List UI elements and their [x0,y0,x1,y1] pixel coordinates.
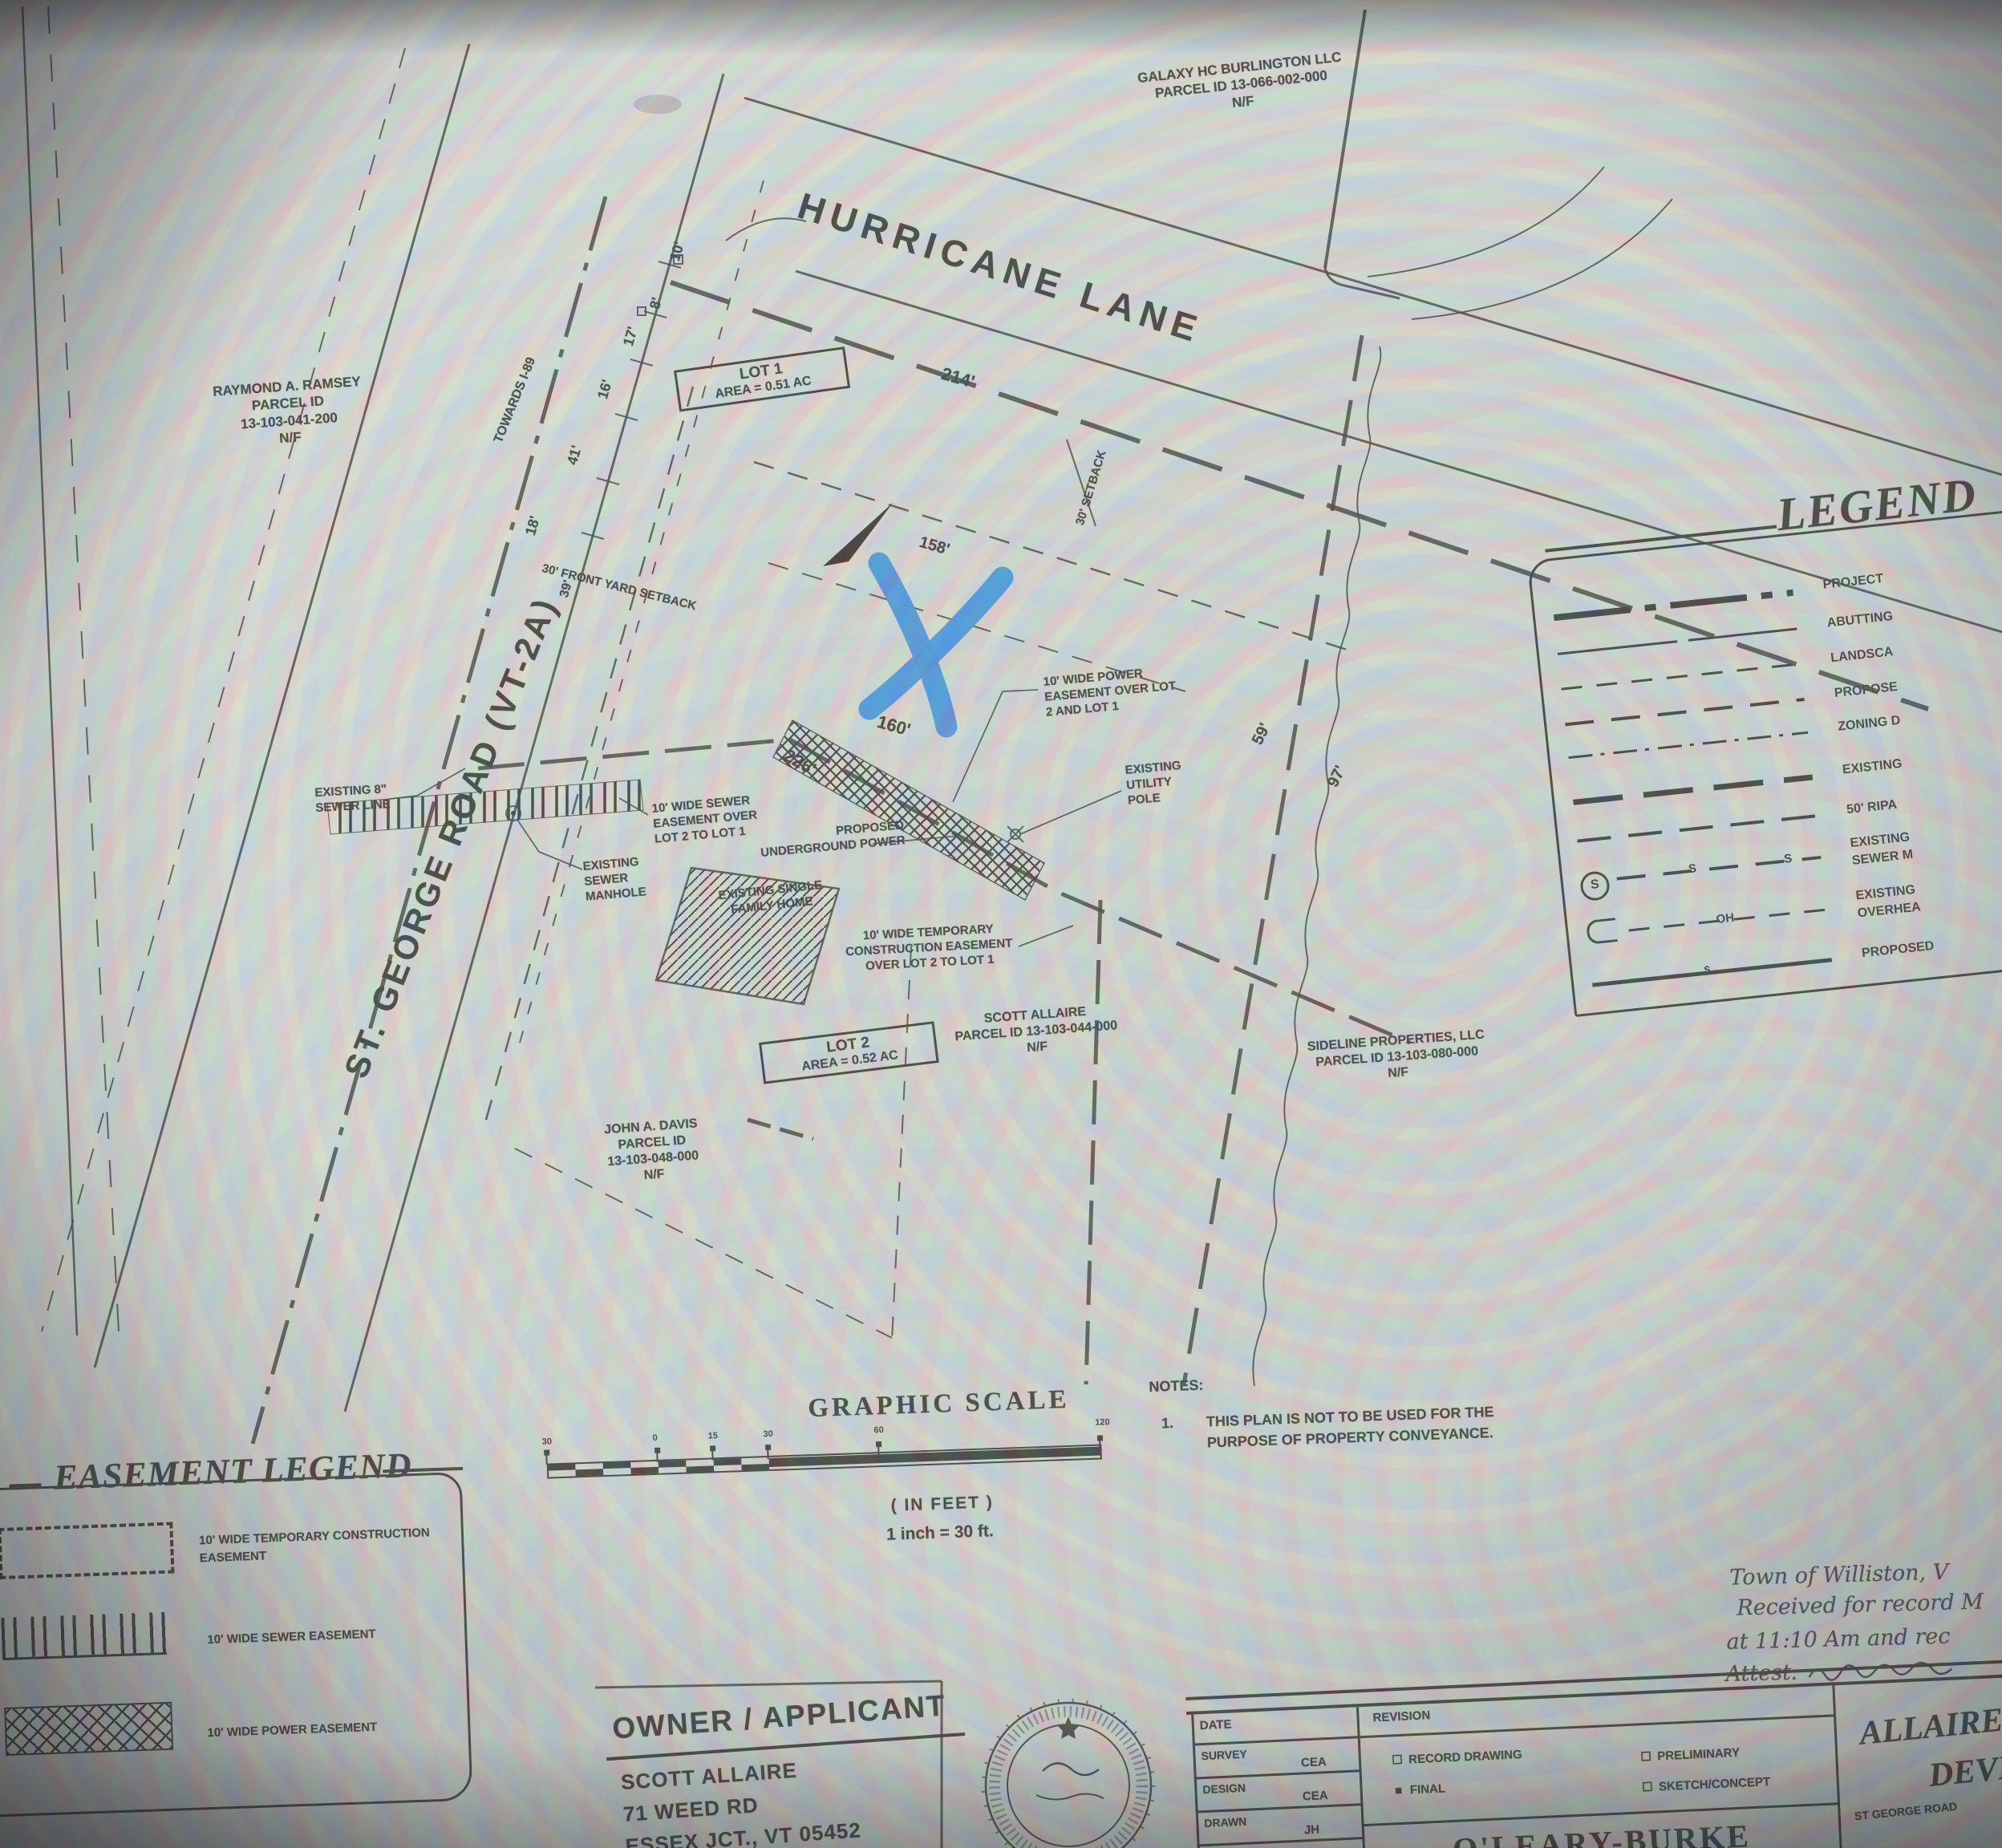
proposed-s-mark: s [1703,962,1711,976]
titleblock-row-label: DESIGN [1202,1781,1246,1797]
project-title-line1: ALLAIRE RESIDE [1858,1686,2002,1755]
sewer-easement-swatch [1,1612,167,1660]
checkbox-record-drawing: ☐ RECORD DRAWING [1389,1748,1523,1769]
title-block-rule [1193,1736,1360,1745]
callout-manhole: EXISTING SEWER MANHOLE [582,854,646,905]
checkbox-icon: ■ [1390,1784,1407,1800]
callout-utility-pole: EXISTING UTILITY POLE [1125,759,1185,808]
legend-panel: LEGEND PROJECT ABUTTING LANDSCA PROPOSE … [1518,455,2002,1020]
title-block-rule [1194,1769,1362,1779]
checkbox-label: SKETCH/CONCEPT [1659,1775,1771,1793]
title-block-rule [1832,1685,1843,1848]
parcel-ramsey: RAYMOND A. RAMSEY PARCEL ID 13-103-041-2… [210,373,367,452]
titleblock-row-label: DRAWN [1204,1815,1247,1831]
callout-sewer-easement: 10' WIDE SEWER EASEMENT OVER LOT 2 TO LO… [651,793,759,847]
checkbox-preliminary: ☐ PRELIMINARY [1638,1746,1741,1765]
scale-tick: 120 [1095,1417,1110,1428]
overhead-oh-mark: OH [1716,911,1735,926]
checkbox-label: RECORD DRAWING [1408,1748,1522,1766]
title-block-rule [1198,1837,1365,1846]
site-plan-photo: GALAXY HC BURLINGTON LLC PARCEL ID 13-06… [0,0,2002,1848]
checkbox-icon: ☐ [1638,1750,1655,1766]
checkbox-final: ■ FINAL [1390,1781,1445,1799]
blue-x-annotation [869,563,1003,727]
parcel-davis: JOHN A. DAVIS PARCEL ID 13-103-048-000 N… [574,1114,731,1189]
temp-construction-easement-swatch [0,1522,174,1580]
scale-tick: 0 [652,1433,658,1443]
overhead-utility-legend-icon [1586,918,1618,945]
titleblock-row-value: CEA [1303,1789,1328,1805]
sewer-s-mark: S [1783,852,1793,866]
checkbox-label: PRELIMINARY [1657,1746,1740,1764]
power-easement-swatch [4,1702,173,1756]
easement-label: EASEMENT [200,1549,267,1566]
titleblock-row-value: JH [1303,1823,1319,1839]
title-block-rule [1191,1715,1202,1848]
scale-tick: 60 [873,1425,884,1435]
firm-name: O'LEARY-BURKE [1376,1813,1827,1848]
scale-tick: 30 [542,1437,553,1446]
callout-sewer-line: EXISTING 8" SEWER LINE [314,782,391,816]
scale-tick: 30 [763,1429,773,1439]
titleblock-revision-label: REVISION [1372,1708,1430,1726]
checkbox-label: FINAL [1410,1781,1446,1797]
callout-temp-construction: 10' WIDE TEMPORARY CONSTRUCTION EASEMENT… [836,921,1023,975]
project-address: ST GEORGE ROAD [1854,1800,1957,1824]
checkbox-icon: ☐ [1639,1781,1656,1797]
titleblock-date-label: DATE [1199,1717,1232,1734]
titleblock-row-label: SURVEY [1201,1748,1247,1764]
checkbox-icon: ☐ [1389,1753,1406,1769]
surveyor-seal [983,1700,1153,1848]
title-block-rule [1356,1707,1368,1848]
scale-tick: 15 [707,1431,718,1441]
titleblock-row-value: CEA [1301,1755,1327,1771]
checkbox-sketch-concept: ☐ SKETCH/CONCEPT [1639,1775,1771,1796]
sewer-s-mark: S [1688,861,1697,876]
notes-title: NOTES: [1149,1376,1204,1396]
title-block-rule [1196,1803,1364,1813]
note-number: 1. [1161,1414,1174,1433]
